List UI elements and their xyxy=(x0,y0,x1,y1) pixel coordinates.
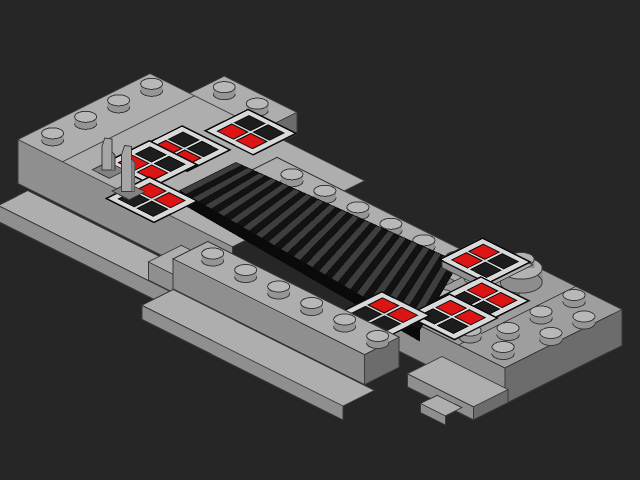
lego-model-render xyxy=(0,0,640,480)
render-viewport xyxy=(0,0,640,480)
